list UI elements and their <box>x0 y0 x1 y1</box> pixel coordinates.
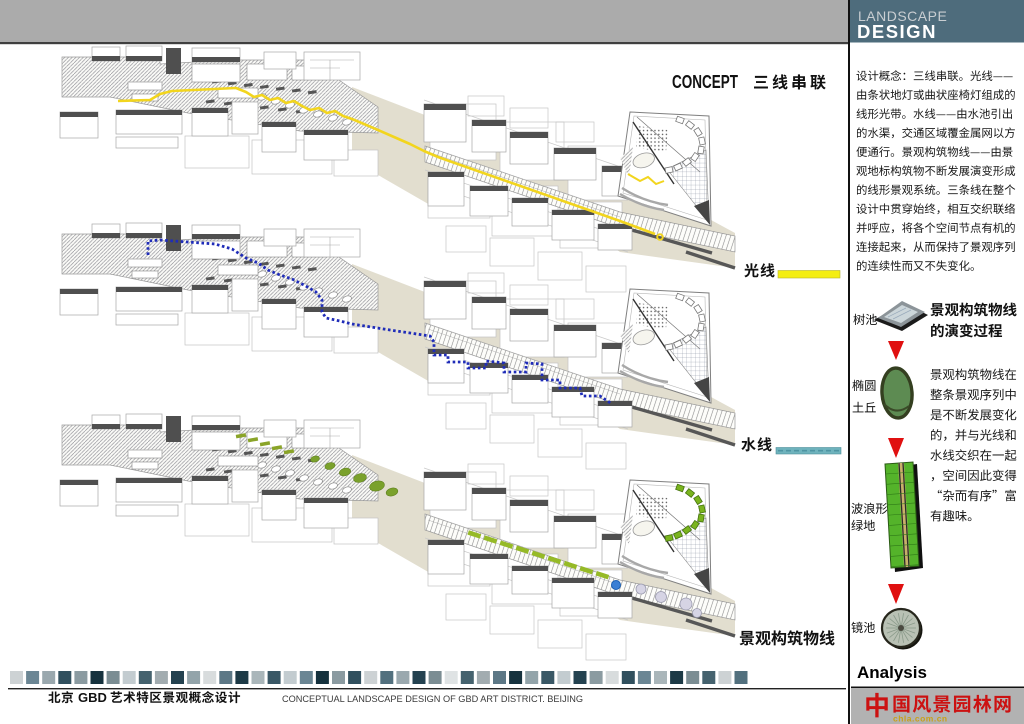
svg-text:CONCEPTUAL LANDSCAPE DESIGN: CONCEPTUAL LANDSCAPE DESIGN OF GBD ART D… <box>282 694 583 704</box>
svg-text:Analysis: Analysis <box>857 663 927 682</box>
svg-text:CONCEPT: CONCEPT <box>672 72 738 92</box>
svg-text:DESIGN: DESIGN <box>857 21 937 42</box>
svg-text:chla.com.cn: chla.com.cn <box>893 714 948 724</box>
svg-text:GBD: GBD <box>78 690 107 705</box>
